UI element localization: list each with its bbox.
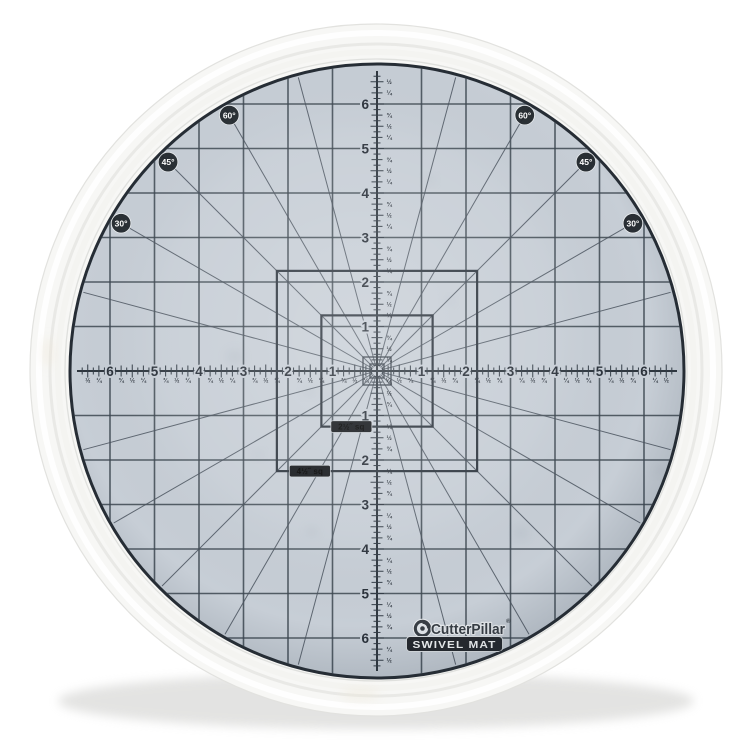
product-photo: 111122223333444455556666¼¼¼¼½½½½¾¾¾¾¼¼¼¼…	[0, 0, 750, 750]
base-warm-spot	[43, 337, 53, 367]
swivel-mat: 111122223333444455556666¼¼¼¼½½½½¾¾¾¾¼¼¼¼…	[0, 0, 750, 750]
mat-print: 111122223333444455556666¼¼¼¼½½½½¾¾¾¾¼¼¼¼…	[70, 64, 684, 678]
mat-vignette	[70, 64, 684, 678]
base-warm-spot	[340, 688, 380, 700]
